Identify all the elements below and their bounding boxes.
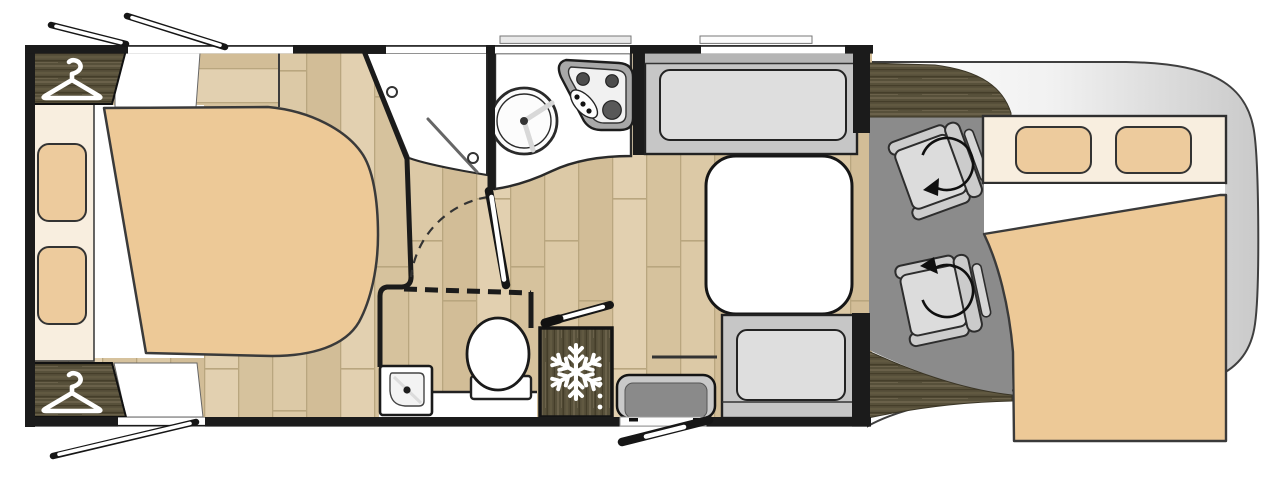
burner (577, 73, 590, 86)
bed-mattress (104, 107, 378, 356)
motorhome-floorplan (0, 0, 1279, 482)
wall-divider-shower-kitchen (488, 52, 496, 190)
burner (606, 75, 619, 88)
bench-cushion (737, 330, 845, 400)
dinette-bench-rear (722, 315, 856, 418)
open-window-pane (127, 16, 225, 47)
shower-hinge (387, 87, 397, 97)
kitchen-sink (491, 88, 557, 154)
shower-hinge (468, 153, 478, 163)
open-window-pane (53, 422, 196, 456)
bench-cushion (660, 70, 846, 140)
fridge (540, 328, 612, 417)
wall-right-upper (853, 52, 870, 133)
drop-down-bed (983, 116, 1226, 441)
burner-large (603, 101, 622, 120)
entry-door (620, 417, 709, 442)
pillow (1016, 127, 1091, 173)
toilet (467, 318, 531, 399)
bedside-shelf (196, 53, 280, 107)
pillow (38, 144, 86, 221)
drop-bed-mattress (984, 195, 1226, 441)
wall-divider-kitchen-dinette (633, 52, 644, 155)
pillow (38, 247, 86, 324)
window-pane-closed (500, 36, 631, 43)
wall-left (25, 45, 35, 427)
wall-right-lower (852, 313, 870, 427)
wardrobe-top (34, 50, 126, 104)
bed-step-bottom (114, 363, 203, 417)
bed-step-top (115, 53, 200, 107)
dinette-bench-front (645, 52, 857, 154)
open-window-pane (51, 25, 126, 44)
floorplan-canvas (0, 0, 1279, 482)
wardrobe-bottom (34, 363, 126, 417)
corner-washbasin (380, 366, 432, 415)
dinette-table (706, 156, 852, 314)
pillow (1116, 127, 1191, 173)
window-pane-closed (700, 36, 812, 43)
